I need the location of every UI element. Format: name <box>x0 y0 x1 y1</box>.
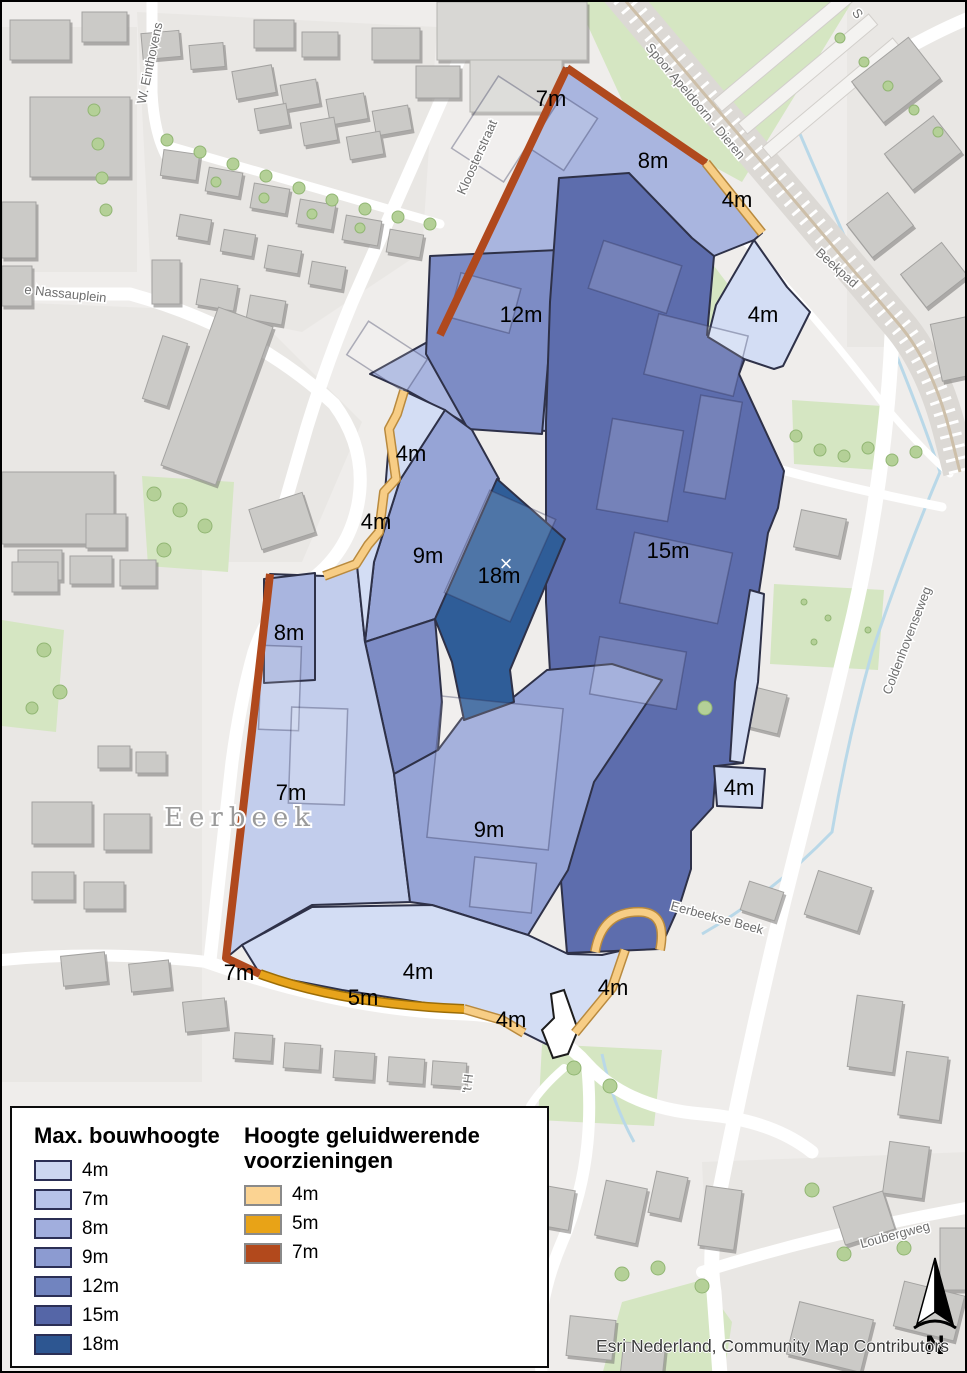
height-label: 5m <box>348 985 379 1010</box>
legend-item-4m: 4m <box>34 1160 220 1182</box>
legend-item-9m: 9m <box>34 1247 220 1269</box>
legend-label: 9m <box>82 1247 108 1269</box>
legend-swatch <box>244 1243 282 1264</box>
legend-swatch <box>34 1160 72 1181</box>
height-label: 7m <box>536 86 567 111</box>
height-label: 4m <box>598 975 629 1000</box>
legend-swatch <box>34 1305 72 1326</box>
legend-item-7m: 7m <box>34 1189 220 1211</box>
legend-barrier-heights: Hoogte geluidwerende voorzieningen 4m5m7… <box>244 1124 524 1271</box>
height-label: 4m <box>396 441 427 466</box>
legend-building-rows: 4m7m8m9m12m15m18m <box>34 1160 220 1356</box>
legend-label: 5m <box>292 1213 318 1235</box>
legend-building-title: Max. bouwhoogte <box>34 1124 220 1149</box>
legend-barrier-rows: 4m5m7m <box>244 1184 524 1264</box>
street-label: e Nassauplein <box>24 282 108 306</box>
legend-label: 4m <box>82 1160 108 1182</box>
legend-item-12m: 12m <box>34 1276 220 1298</box>
map-page: 7m8m4m12m4m4m4m9m18m15m8m7m9m4m7m5m4m4m4… <box>0 0 967 1373</box>
legend-item-15m: 15m <box>34 1305 220 1327</box>
height-label: 15m <box>647 538 690 563</box>
height-label: 4m <box>724 775 755 800</box>
street-label: Coldenhovenseweg <box>879 584 934 696</box>
legend-swatch <box>34 1189 72 1210</box>
legend-item-4m: 4m <box>244 1184 524 1206</box>
legend-building-heights: Max. bouwhoogte 4m7m8m9m12m15m18m <box>34 1124 220 1363</box>
legend-swatch <box>34 1276 72 1297</box>
legend-label: 18m <box>82 1334 119 1356</box>
street-label: 't H <box>459 1073 476 1094</box>
height-label: 12m <box>500 302 543 327</box>
height-label: 4m <box>496 1007 527 1032</box>
center-cross-marker: × <box>500 551 513 576</box>
height-label: 8m <box>274 620 305 645</box>
legend-label: 7m <box>292 1242 318 1264</box>
legend-item-18m: 18m <box>34 1334 220 1356</box>
height-label: 4m <box>361 509 392 534</box>
height-label: 7m <box>224 960 255 985</box>
legend-label: 15m <box>82 1305 119 1327</box>
legend-label: 12m <box>82 1276 119 1298</box>
height-label: 9m <box>413 543 444 568</box>
legend-swatch <box>244 1185 282 1206</box>
height-label: 9m <box>474 817 505 842</box>
height-label: 4m <box>403 959 434 984</box>
legend-item-8m: 8m <box>34 1218 220 1240</box>
legend-swatch <box>34 1334 72 1355</box>
legend-swatch <box>244 1214 282 1235</box>
legend-item-5m: 5m <box>244 1213 524 1235</box>
legend-label: 4m <box>292 1184 318 1206</box>
height-label: 4m <box>748 302 779 327</box>
legend-item-7m: 7m <box>244 1242 524 1264</box>
height-label: 7m <box>276 780 307 805</box>
legend-barrier-title: Hoogte geluidwerende voorzieningen <box>244 1124 524 1173</box>
legend-panel: Max. bouwhoogte 4m7m8m9m12m15m18m Hoogte… <box>10 1106 549 1368</box>
height-label: 4m <box>722 187 753 212</box>
legend-label: 8m <box>82 1218 108 1240</box>
legend-swatch <box>34 1218 72 1239</box>
legend-label: 7m <box>82 1189 108 1211</box>
height-label: 8m <box>638 148 669 173</box>
legend-swatch <box>34 1247 72 1268</box>
place-label: Eerbeek <box>164 803 316 833</box>
attribution: Esri Nederland, Community Map Contributo… <box>596 1336 949 1357</box>
